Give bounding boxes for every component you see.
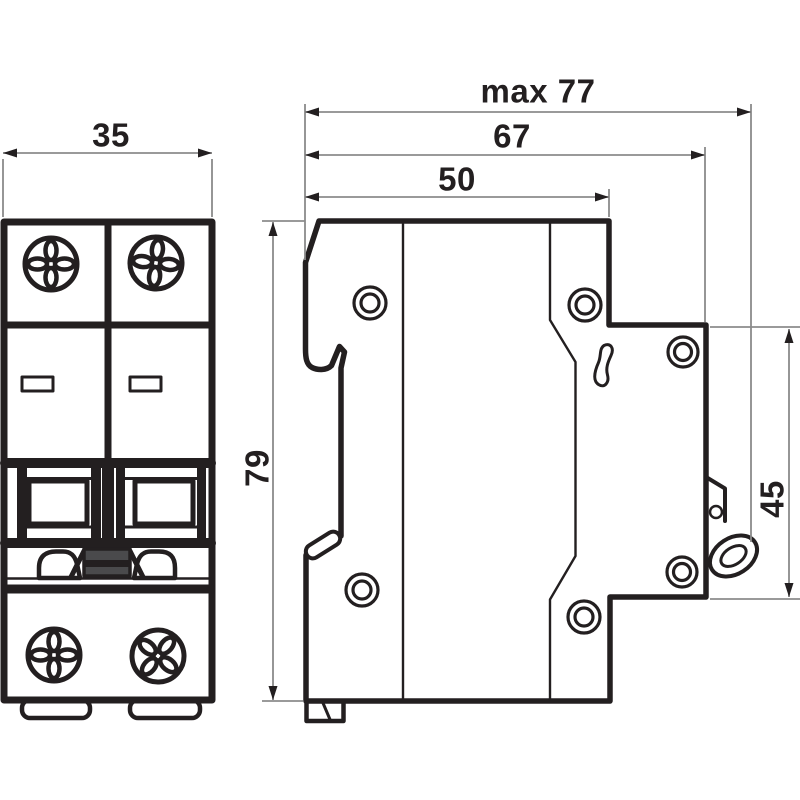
- front-view: [4, 222, 212, 718]
- dim-label-body-depth: 67: [493, 120, 531, 153]
- label-window-right: [130, 377, 161, 391]
- dim-label-front-width: 35: [92, 119, 130, 152]
- toggle-switch-right: [135, 481, 193, 524]
- technical-drawing: 35 max 77 67 50 79 45: [0, 0, 800, 800]
- label-window-left: [22, 377, 53, 391]
- dim-35: [3, 153, 212, 217]
- toggle-switch-left: [29, 481, 87, 524]
- dim-label-right-height: 45: [756, 480, 789, 518]
- dim-label-top-depth: 50: [438, 163, 476, 196]
- side-view: [303, 221, 765, 721]
- din-clip-tab: [307, 701, 344, 721]
- dim-label-max-depth: max 77: [481, 75, 596, 108]
- center-divider-bar: [102, 464, 114, 542]
- side-body-outline: [306, 221, 707, 701]
- dim-label-height: 79: [241, 449, 274, 487]
